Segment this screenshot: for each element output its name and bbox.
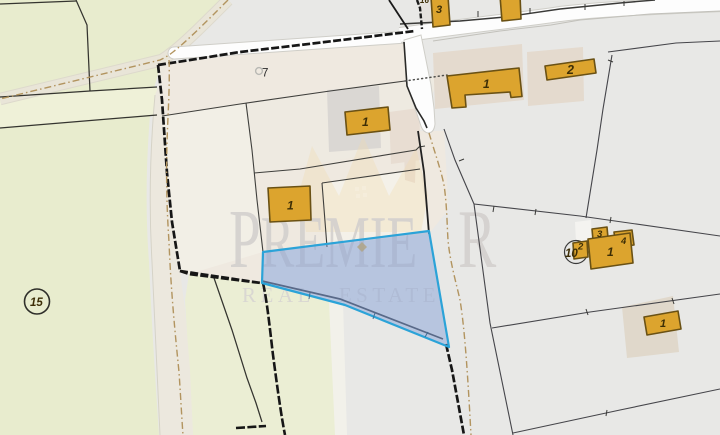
svg-text:15: 15 (30, 297, 43, 309)
svg-text:3: 3 (436, 4, 442, 16)
svg-text:1: 1 (287, 199, 294, 213)
svg-text:7: 7 (262, 68, 268, 80)
svg-text:1: 1 (483, 77, 490, 91)
svg-text:1: 1 (607, 245, 614, 259)
svg-text:2: 2 (577, 242, 584, 253)
svg-text:16: 16 (420, 0, 429, 5)
svg-text:2: 2 (566, 63, 574, 77)
svg-text:1: 1 (362, 115, 369, 129)
svg-text:1: 1 (660, 318, 666, 330)
svg-text:3: 3 (597, 229, 603, 240)
svg-text:4: 4 (620, 236, 627, 247)
svg-text:10: 10 (565, 248, 578, 260)
